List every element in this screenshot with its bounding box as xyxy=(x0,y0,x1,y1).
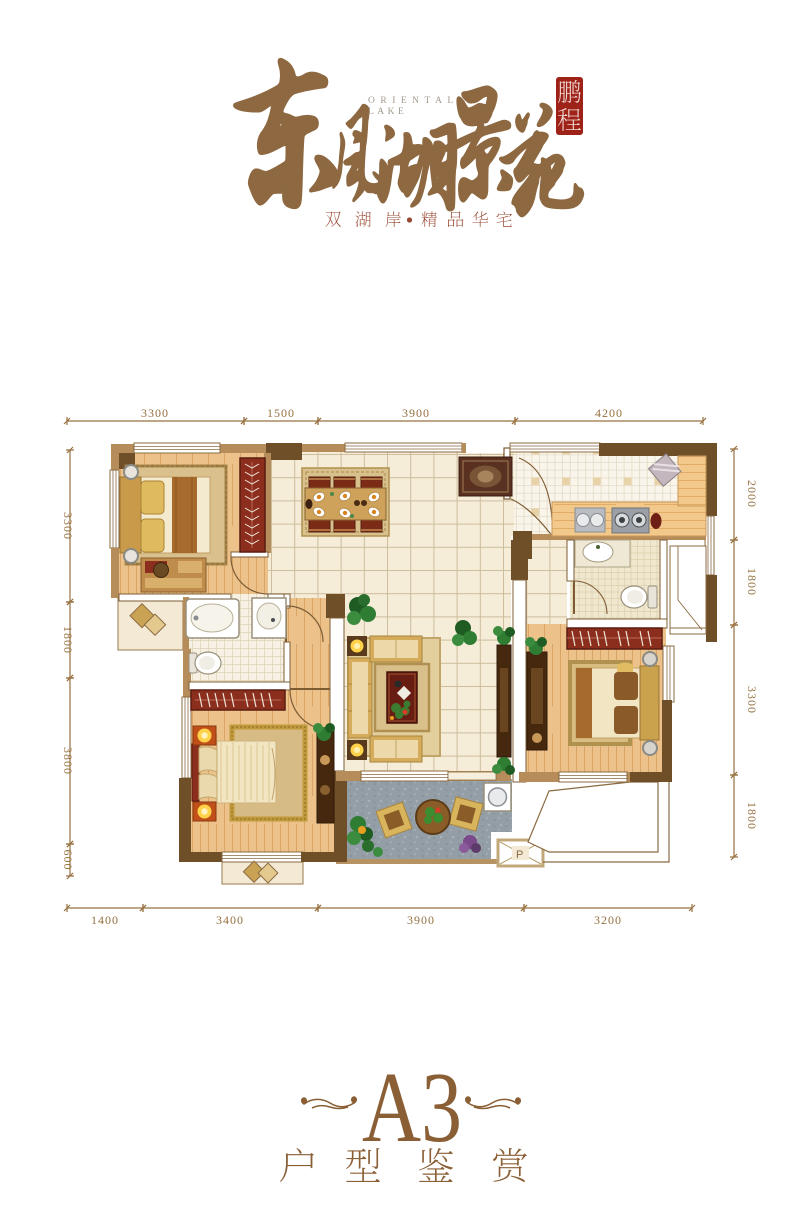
svg-text:4200: 4200 xyxy=(595,406,623,420)
svg-text:1800: 1800 xyxy=(61,626,75,654)
svg-text:1800: 1800 xyxy=(745,802,759,830)
svg-text:3400: 3400 xyxy=(216,913,244,927)
svg-text:3900: 3900 xyxy=(407,913,435,927)
svg-text:3800: 3800 xyxy=(61,747,75,775)
svg-text:3900: 3900 xyxy=(402,406,430,420)
svg-text:3300: 3300 xyxy=(61,512,75,540)
svg-text:2000: 2000 xyxy=(745,480,759,508)
svg-text:P: P xyxy=(516,849,523,861)
svg-text:1800: 1800 xyxy=(745,568,759,596)
svg-text:600: 600 xyxy=(61,850,75,871)
svg-text:LAKE: LAKE xyxy=(368,107,407,117)
svg-text:3300: 3300 xyxy=(141,406,169,420)
svg-text:A3: A3 xyxy=(362,1051,462,1163)
svg-text:1400: 1400 xyxy=(91,913,119,927)
svg-text:3300: 3300 xyxy=(745,686,759,714)
svg-text:ORIENTAL: ORIENTAL xyxy=(368,96,459,106)
svg-text:3200: 3200 xyxy=(594,913,622,927)
svg-text:1500: 1500 xyxy=(267,406,295,420)
